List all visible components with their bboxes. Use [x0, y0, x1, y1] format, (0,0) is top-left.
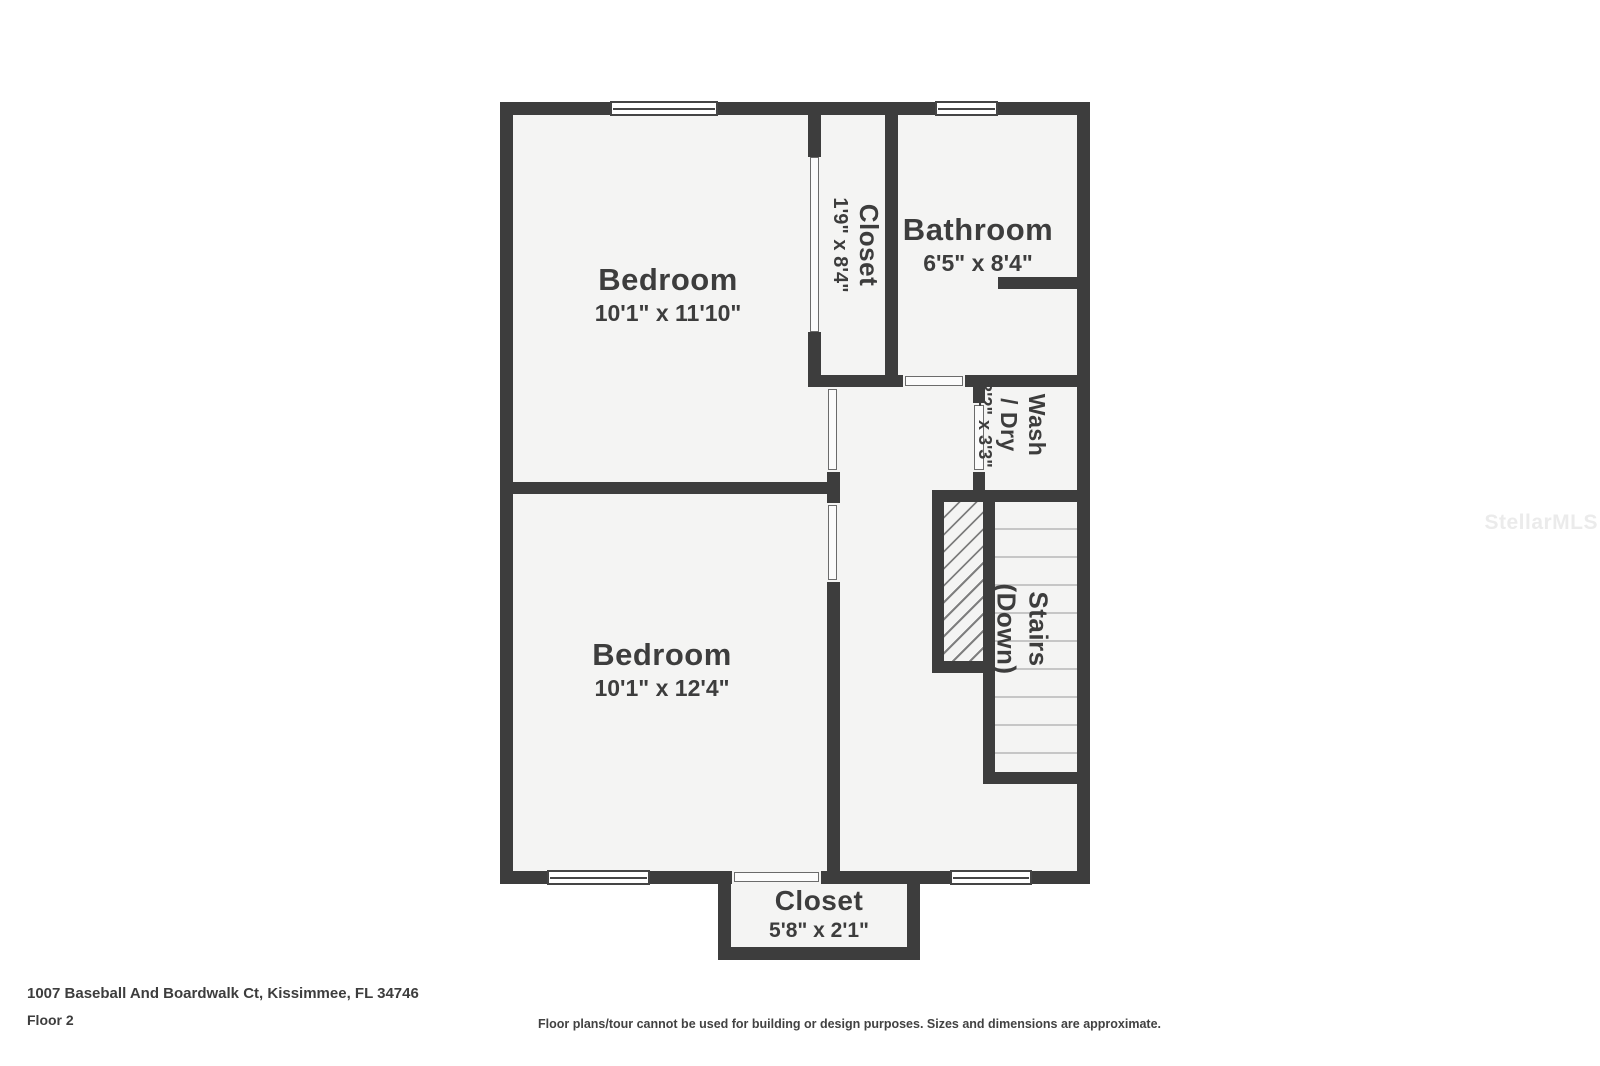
- window: [547, 870, 650, 885]
- wall-segment: [885, 375, 903, 387]
- closet-sliding-door: [810, 157, 819, 332]
- wall-segment: [983, 772, 1090, 784]
- closet-bottom-door: [734, 872, 819, 882]
- room-name-line2: (Down): [990, 583, 1022, 674]
- room-name: Closet: [852, 204, 884, 286]
- property-address: 1007 Baseball And Boardwalk Ct, Kissimme…: [27, 985, 419, 1002]
- room-name: Closet: [775, 884, 864, 918]
- stairwell-hatch: [944, 502, 983, 661]
- room-dims: 10'1" x 11'10": [595, 299, 742, 327]
- room-dims: 1'9" x 8'4": [828, 197, 852, 292]
- room-label-bedroom-top: Bedroom 10'1" x 11'10": [595, 261, 742, 327]
- window: [610, 101, 718, 116]
- window-glass-line: [550, 877, 647, 879]
- wall-segment: [500, 102, 513, 884]
- floor-number-label: Floor 2: [27, 1012, 74, 1028]
- bedroom-bottom-door: [828, 505, 837, 580]
- wall-segment: [500, 102, 1090, 115]
- room-dims: 5'8" x 2'1": [769, 918, 869, 944]
- floorplan-page: Bedroom 10'1" x 11'10" Closet 1'9" x 8'4…: [0, 0, 1600, 1066]
- wall-segment: [932, 490, 944, 673]
- wall-segment: [973, 472, 985, 490]
- room-name: Stairs: [1022, 591, 1054, 666]
- wall-segment: [998, 277, 1077, 289]
- bedroom-top-door: [828, 389, 837, 470]
- room-label-stairs: Stairs (Down): [990, 583, 1053, 674]
- room-label-bathroom: Bathroom 6'5" x 8'4": [903, 211, 1053, 277]
- room-name: Bedroom: [592, 636, 732, 674]
- room-name: Bedroom: [598, 261, 738, 299]
- wall-segment: [808, 115, 821, 157]
- wall-segment: [1077, 102, 1090, 884]
- room-name-line2: / Dry: [995, 398, 1023, 452]
- stellar-mls-watermark: StellarMLS: [1484, 511, 1598, 535]
- room-dims: 10'1" x 12'4": [594, 674, 729, 702]
- disclaimer-text: Floor plans/tour cannot be used for buil…: [538, 1017, 1161, 1031]
- wall-segment: [513, 482, 840, 494]
- bathroom-door: [905, 376, 963, 386]
- room-dims: 6'5" x 8'4": [923, 249, 1033, 277]
- window-glass-line: [613, 108, 715, 110]
- wall-segment: [885, 115, 898, 387]
- room-name: Bathroom: [903, 211, 1053, 249]
- wall-segment: [718, 947, 920, 960]
- window-glass-line: [938, 108, 995, 110]
- room-label-closet-top: Closet 1'9" x 8'4": [828, 197, 884, 292]
- room-dims: 3'2" x 3'3": [973, 382, 995, 468]
- window-glass-line: [953, 877, 1029, 879]
- window: [935, 101, 998, 116]
- room-label-wash-dry: Wash / Dry 3'2" x 3'3": [973, 382, 1051, 468]
- wall-segment: [932, 490, 1077, 502]
- wall-segment: [932, 661, 995, 673]
- window: [950, 870, 1032, 885]
- floorplan: Bedroom 10'1" x 11'10" Closet 1'9" x 8'4…: [500, 102, 1090, 960]
- room-label-closet-bottom: Closet 5'8" x 2'1": [769, 884, 869, 944]
- room-name: Wash: [1023, 394, 1051, 457]
- room-label-bedroom-bottom: Bedroom 10'1" x 12'4": [592, 636, 732, 702]
- wall-segment: [827, 582, 840, 871]
